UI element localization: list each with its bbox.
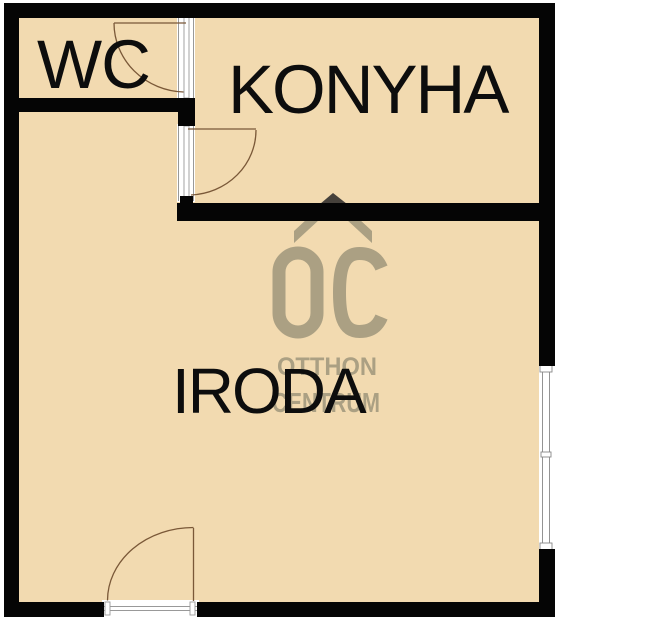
wc-door-frame-center: [184, 17, 189, 98]
entrance-sill-cap-left: [105, 602, 110, 615]
konyha-door-frame-center: [184, 126, 189, 200]
wall-konyha-iroda: [177, 203, 555, 221]
konyha-door-frame: [177, 124, 195, 202]
window-cap-bottom: [540, 543, 552, 550]
window-divider: [541, 452, 551, 457]
wc-door-frame: [177, 15, 195, 100]
window-cap-top: [540, 365, 552, 372]
wall-bottom-right: [197, 602, 555, 617]
wall-bottom-left: [4, 602, 104, 617]
room-label-wc: WC: [37, 26, 150, 103]
wall-stub-between-doors: [178, 112, 195, 126]
entrance-sill-cap-right: [190, 602, 195, 615]
entrance-door-sill: [102, 600, 199, 617]
floorplan-canvas: OTTHON CENTRUM: [0, 0, 657, 622]
entrance-opening: [102, 600, 199, 617]
room-label-iroda: IRODA: [172, 355, 367, 427]
floorplan-drawing: OTTHON CENTRUM: [0, 0, 657, 622]
wall-right-upper: [539, 3, 555, 366]
wall-left: [4, 3, 19, 617]
room-label-konyha: KONYHA: [228, 51, 509, 128]
wall-top: [4, 3, 555, 18]
